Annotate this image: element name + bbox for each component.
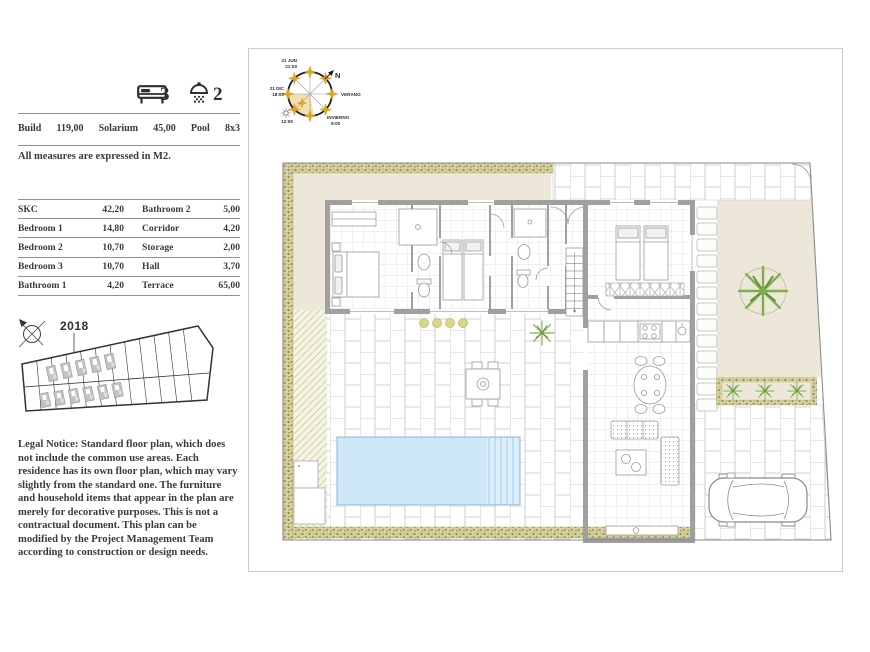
table-row: Bathroom 1 4,20 Terrace 65,00 (18, 277, 240, 296)
site-year-label: 2018 (60, 319, 89, 333)
room-label: Corridor (142, 223, 204, 234)
room-value: 65,00 (204, 280, 240, 291)
garden-tree (739, 267, 787, 315)
site-compass-icon (19, 319, 45, 347)
swimming-pool (337, 437, 520, 505)
summary-value: 45,00 (153, 123, 176, 134)
winter-solstice-date: 21 DIC (270, 86, 285, 91)
summary-label: Solarium (99, 123, 138, 134)
kitchen (588, 321, 690, 342)
room-label: Bathroom 2 (142, 204, 204, 215)
room-value: 10,70 (78, 261, 124, 272)
room-label: Bedroom 3 (18, 261, 78, 272)
room-label: Storage (142, 242, 204, 253)
outdoor-table (466, 362, 500, 406)
legal-notice: Legal Notice: Standard floor plan, which… (18, 438, 238, 560)
table-row: Bedroom 1 14,80 Corridor 4,20 (18, 219, 240, 238)
table-row: Bedroom 3 10,70 Hall 3,70 (18, 258, 240, 277)
info-panel: 3 2 Build 119,00 Solarium 45,00 Pool 8x3… (0, 0, 245, 652)
winter-label: INVIERNO (327, 115, 350, 120)
room-label: Hall (142, 261, 204, 272)
room-value: 2,00 (204, 242, 240, 253)
summer-solstice-date: 21 JUN (281, 58, 297, 63)
table-row: Bedroom 2 10,70 Storage 2,00 (18, 238, 240, 257)
sun-orientation-diagram: 21 JUN 21:00 21 DIC 18:00 VERANO INVIERN… (270, 58, 361, 126)
plan-sheet: 21 JUN 21:00 21 DIC 18:00 VERANO INVIERN… (248, 48, 843, 572)
summary-value: 8x3 (225, 123, 240, 134)
shower-icon (188, 82, 210, 104)
stairs (566, 248, 583, 316)
planter (716, 377, 817, 405)
noon-sun-icon (281, 108, 290, 117)
summary-label: Build (18, 123, 41, 134)
summary-row: Build 119,00 Solarium 45,00 Pool 8x3 (18, 123, 240, 134)
room-value: 42,20 (78, 204, 124, 215)
divider (18, 113, 240, 114)
winter-time: 9:00 (331, 121, 341, 126)
room-value: 4,20 (78, 280, 124, 291)
site-plan-wedge (22, 326, 213, 411)
room-label: SKC (18, 204, 78, 215)
measures-note: All measures are expressed in M2. (18, 151, 171, 162)
summary-label: Pool (191, 123, 210, 134)
summary-value: 119,00 (57, 123, 84, 134)
noon-time: 12:00 (281, 119, 293, 124)
stepping-stones (697, 207, 717, 411)
site-plan-thumbnail: 2018 (12, 316, 237, 428)
summer-label: VERANO (341, 92, 361, 97)
room-label: Bathroom 1 (18, 280, 78, 291)
room-value: 10,70 (78, 242, 124, 253)
room-value: 5,00 (204, 204, 240, 215)
room-label: Terrace (142, 280, 204, 291)
car (709, 473, 807, 527)
bathrooms-count: 2 (213, 84, 223, 106)
room-value: 4,20 (204, 223, 240, 234)
north-label: N (335, 71, 340, 80)
areas-table: SKC 42,20 Bathroom 2 5,00 Bedroom 1 14,8… (18, 199, 240, 296)
floor-plan-page: 3 2 Build 119,00 Solarium 45,00 Pool 8x3… (0, 0, 870, 652)
bedrooms-count: 3 (160, 84, 170, 106)
room-label: Bedroom 1 (18, 223, 78, 234)
room-label: Bedroom 2 (18, 242, 78, 253)
winter-solstice-time: 18:00 (272, 92, 284, 97)
divider (18, 145, 240, 146)
table-row: SKC 42,20 Bathroom 2 5,00 (18, 200, 240, 219)
floor-plan-drawing: 21 JUN 21:00 21 DIC 18:00 VERANO INVIERN… (249, 49, 842, 571)
summer-solstice-time: 21:00 (285, 64, 297, 69)
room-value: 3,70 (204, 261, 240, 272)
room-value: 14,80 (78, 223, 124, 234)
terrace-plant (530, 321, 554, 345)
